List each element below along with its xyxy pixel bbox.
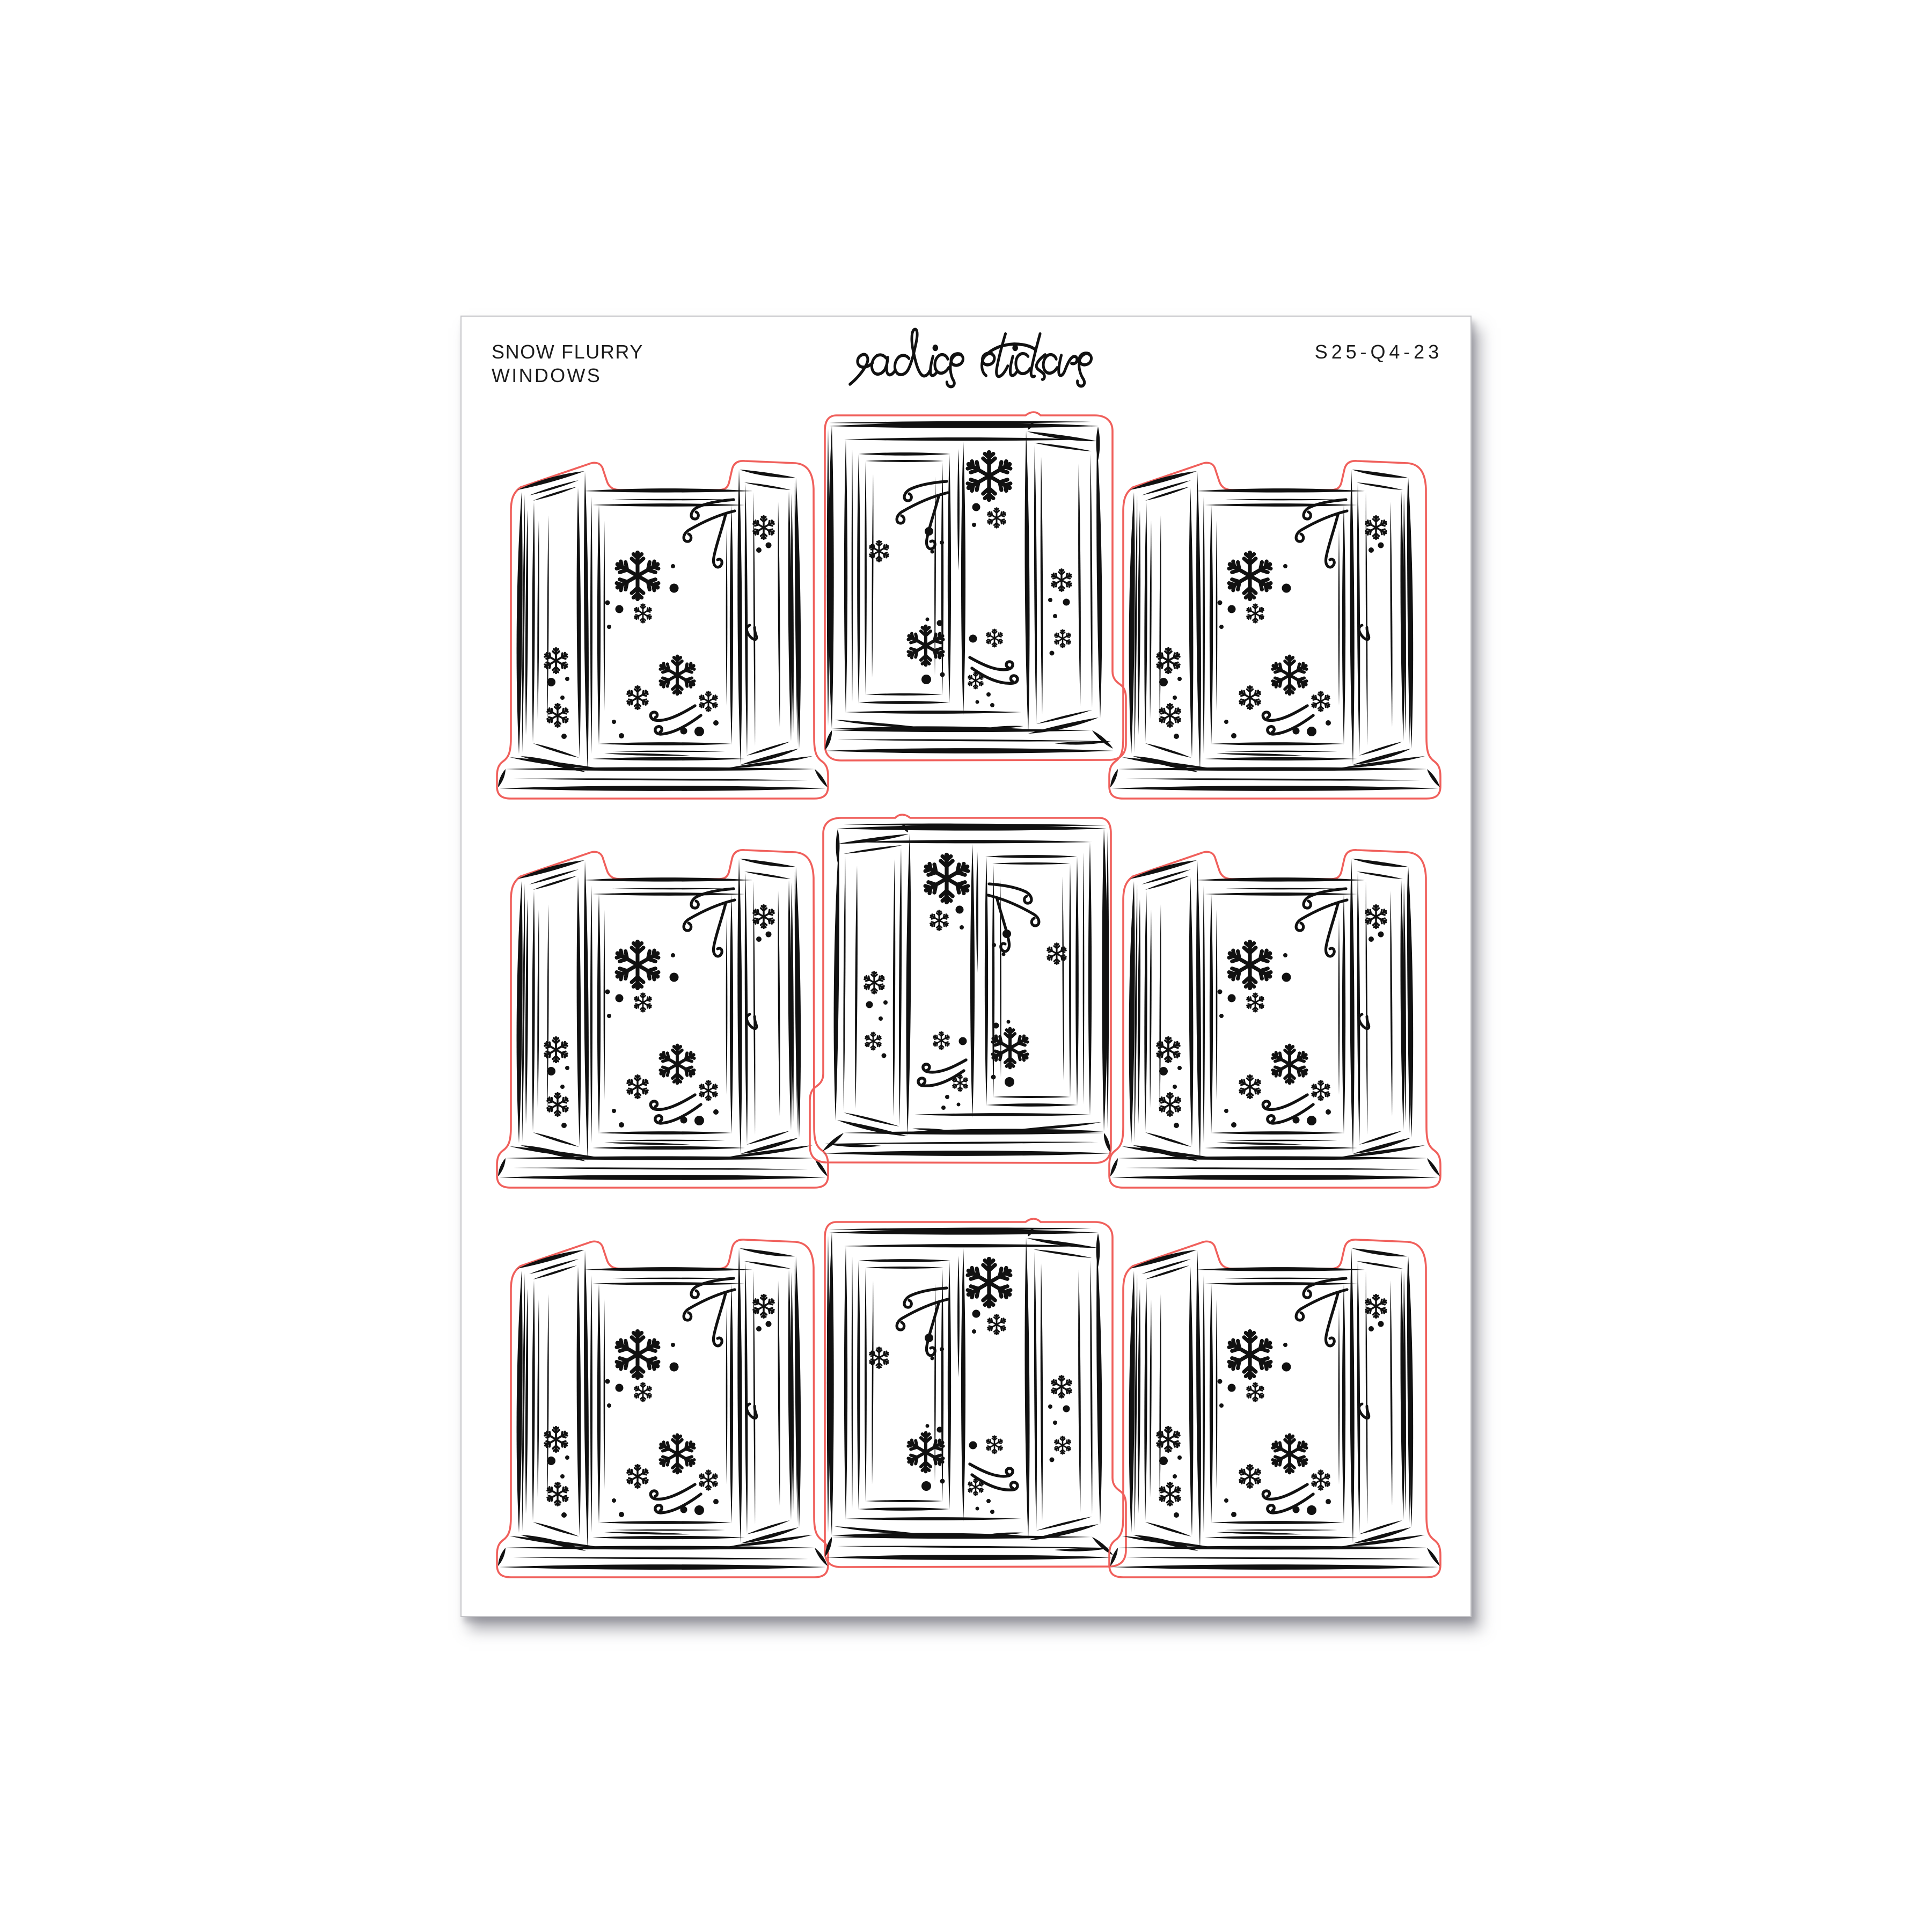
- svg-text:SNOW FLURRY: SNOW FLURRY: [492, 341, 643, 363]
- svg-text:WINDOWS: WINDOWS: [492, 364, 602, 386]
- svg-text:S25-Q4-23: S25-Q4-23: [1315, 341, 1443, 363]
